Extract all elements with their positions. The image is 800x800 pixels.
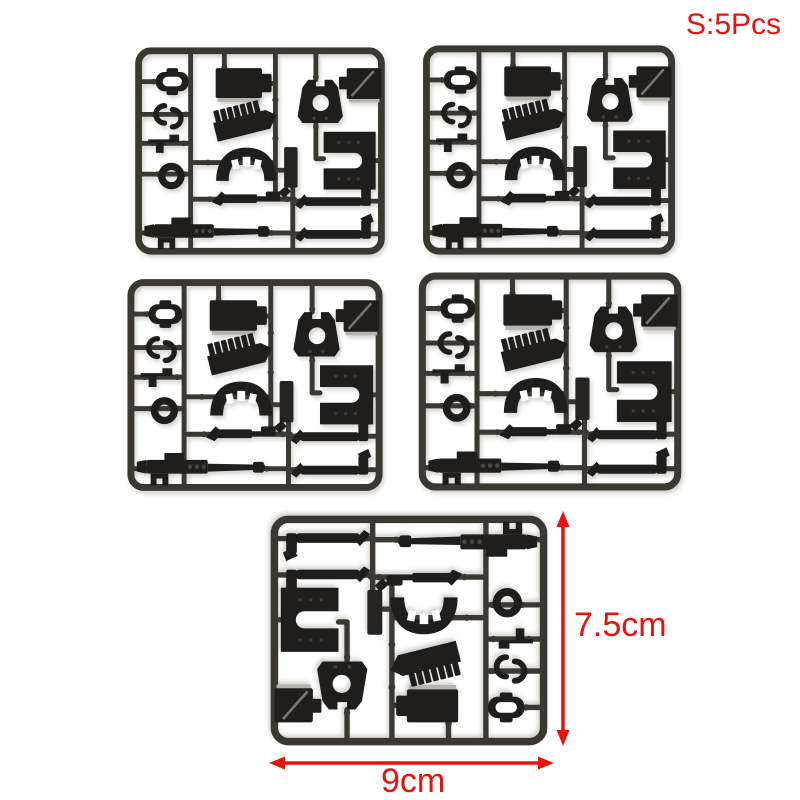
height-arrow xyxy=(557,511,570,746)
product-photo: S:5Pcs 7.5cm 9cm xyxy=(0,0,800,800)
sprue-sheet-illustration xyxy=(0,0,800,800)
sprue-4 xyxy=(422,276,677,487)
sprue-5 xyxy=(274,519,543,741)
width-dimension-label: 9cm xyxy=(381,764,445,798)
height-dimension-label: 7.5cm xyxy=(574,608,667,642)
sprue-1 xyxy=(139,51,382,251)
sprue-3 xyxy=(131,283,379,488)
quantity-badge: S:5Pcs xyxy=(686,10,781,40)
sprue-2 xyxy=(426,49,671,251)
